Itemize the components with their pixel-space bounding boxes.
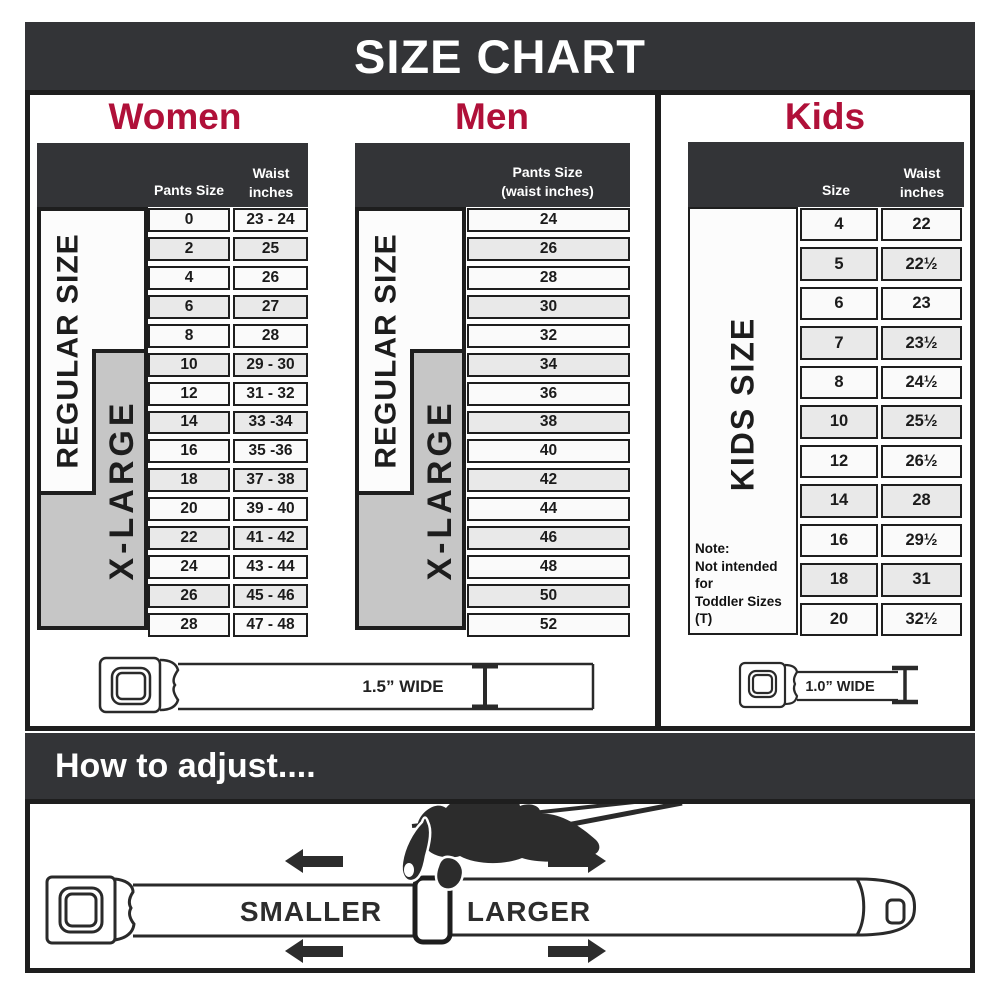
kids-size-label-box: KIDS SIZE Note: Not intended for Toddler… bbox=[688, 207, 798, 635]
women-col1-header: Pants Size bbox=[145, 181, 233, 200]
size-cell: 25 bbox=[233, 237, 308, 261]
size-cell: 38 bbox=[467, 411, 630, 435]
size-cell: 23 bbox=[881, 287, 962, 320]
size-cell: 23 - 24 bbox=[233, 208, 308, 232]
size-cell: 20 bbox=[148, 497, 230, 521]
size-cell: 10 bbox=[800, 405, 878, 438]
kids-note: Note: Not intended for Toddler Sizes (T) bbox=[695, 540, 796, 628]
size-cell: 33 -34 bbox=[233, 411, 308, 435]
size-cell: 20 bbox=[800, 603, 878, 636]
size-cell: 14 bbox=[148, 411, 230, 435]
adjust-buckle-flap bbox=[115, 879, 134, 940]
size-cell: 31 bbox=[881, 563, 962, 596]
panel-divider bbox=[655, 90, 661, 731]
size-cell: 16 bbox=[148, 439, 230, 463]
size-cell: 43 - 44 bbox=[233, 555, 308, 579]
how-to-adjust-bar: How to adjust.... bbox=[25, 733, 975, 799]
size-cell: 40 bbox=[467, 439, 630, 463]
size-cell: 18 bbox=[148, 468, 230, 492]
size-cell: 28 bbox=[881, 484, 962, 517]
adult-width-marker-icon bbox=[472, 666, 498, 707]
size-cell: 26 bbox=[233, 266, 308, 290]
size-cell: 29½ bbox=[881, 524, 962, 557]
size-cell: 42 bbox=[467, 468, 630, 492]
size-cell: 2 bbox=[148, 237, 230, 261]
size-cell: 36 bbox=[467, 382, 630, 406]
kids-buckle-flap bbox=[785, 665, 797, 704]
size-cell: 27 bbox=[233, 295, 308, 319]
size-cell: 8 bbox=[148, 324, 230, 348]
men-regular-size-label: REGULAR SIZE bbox=[370, 233, 403, 468]
kids-table-header: Size Waist inches bbox=[688, 142, 964, 207]
size-cell: 23½ bbox=[881, 326, 962, 359]
size-cell: 30 bbox=[467, 295, 630, 319]
men-size-table: 242628303234363840424446485052 bbox=[467, 208, 630, 637]
women-size-class-labels: REGULAR SIZE X-LARGE bbox=[37, 207, 148, 635]
kids-col1-header: Size bbox=[795, 181, 877, 200]
size-cell: 22 bbox=[881, 208, 962, 241]
adult-belt-illustration: 1.5” WIDE bbox=[90, 650, 600, 718]
men-title: Men bbox=[392, 96, 592, 138]
size-cell: 6 bbox=[148, 295, 230, 319]
size-cell: 48 bbox=[467, 555, 630, 579]
kids-size-table: 422522½623723½824½1025½1226½14281629½183… bbox=[800, 208, 962, 636]
size-cell: 6 bbox=[800, 287, 878, 320]
size-cell: 8 bbox=[800, 366, 878, 399]
size-cell: 4 bbox=[148, 266, 230, 290]
size-cell: 37 - 38 bbox=[233, 468, 308, 492]
men-table-header: Pants Size (waist inches) bbox=[355, 143, 630, 207]
size-chart-header-bar: SIZE CHART bbox=[25, 22, 975, 90]
size-cell: 29 - 30 bbox=[233, 353, 308, 377]
adult-belt-width-label: 1.5” WIDE bbox=[362, 677, 443, 696]
smaller-label: SMALLER bbox=[240, 896, 382, 927]
women-col2-header: Waist inches bbox=[233, 164, 309, 202]
size-cell: 50 bbox=[467, 584, 630, 608]
size-cell: 22 bbox=[148, 526, 230, 550]
size-cell: 31 - 32 bbox=[233, 382, 308, 406]
women-xlarge-label: X-LARGE bbox=[103, 400, 141, 581]
size-cell: 47 - 48 bbox=[233, 613, 308, 637]
size-cell: 12 bbox=[800, 445, 878, 478]
size-cell: 35 -36 bbox=[233, 439, 308, 463]
men-xlarge-label: X-LARGE bbox=[421, 400, 459, 581]
size-cell: 45 - 46 bbox=[233, 584, 308, 608]
larger-label: LARGER bbox=[467, 896, 591, 927]
size-cell: 28 bbox=[467, 266, 630, 290]
size-cell: 26½ bbox=[881, 445, 962, 478]
size-cell: 28 bbox=[148, 613, 230, 637]
size-cell: 32½ bbox=[881, 603, 962, 636]
kids-buckle-icon bbox=[740, 663, 785, 707]
size-cell: 41 - 42 bbox=[233, 526, 308, 550]
size-cell: 25½ bbox=[881, 405, 962, 438]
size-cell: 22½ bbox=[881, 247, 962, 280]
adjust-illustration: SMALLER LARGER bbox=[30, 804, 970, 968]
women-regular-size-label: REGULAR SIZE bbox=[52, 233, 85, 468]
kids-size-label: KIDS SIZE bbox=[725, 317, 762, 491]
size-cell: 24 bbox=[148, 555, 230, 579]
size-cell: 16 bbox=[800, 524, 878, 557]
women-size-table: 023 - 242254266278281029 - 301231 - 3214… bbox=[148, 208, 308, 637]
size-cell: 24 bbox=[467, 208, 630, 232]
size-cell: 46 bbox=[467, 526, 630, 550]
thumbnail bbox=[404, 863, 414, 877]
size-cell: 14 bbox=[800, 484, 878, 517]
size-chart-page: SIZE CHART Women Men Kids Pants Size Wai… bbox=[0, 0, 1000, 1000]
belt-tip-hole bbox=[887, 900, 904, 923]
size-cell: 10 bbox=[148, 353, 230, 377]
size-cell: 39 - 40 bbox=[233, 497, 308, 521]
size-cell: 44 bbox=[467, 497, 630, 521]
women-table-header: Pants Size Waist inches bbox=[37, 143, 308, 207]
page-title: SIZE CHART bbox=[354, 29, 646, 84]
size-cell: 0 bbox=[148, 208, 230, 232]
men-col-header: Pants Size (waist inches) bbox=[470, 163, 625, 201]
size-cell: 18 bbox=[800, 563, 878, 596]
kids-title: Kids bbox=[725, 96, 925, 138]
size-cell: 52 bbox=[467, 613, 630, 637]
size-cell: 24½ bbox=[881, 366, 962, 399]
women-title: Women bbox=[75, 96, 275, 138]
size-cell: 12 bbox=[148, 382, 230, 406]
how-to-adjust-title: How to adjust.... bbox=[55, 747, 316, 786]
kids-belt-illustration: 1.0” WIDE bbox=[728, 656, 928, 712]
size-cell: 7 bbox=[800, 326, 878, 359]
size-cell: 28 bbox=[233, 324, 308, 348]
kids-belt-width-label: 1.0” WIDE bbox=[805, 679, 875, 695]
index-fingertip bbox=[436, 857, 463, 890]
kids-col2-header: Waist inches bbox=[884, 164, 960, 202]
belt-tip-seam bbox=[857, 879, 864, 935]
size-cell: 26 bbox=[467, 237, 630, 261]
size-cell: 26 bbox=[148, 584, 230, 608]
size-cell: 4 bbox=[800, 208, 878, 241]
adjust-illustration-box: SMALLER LARGER bbox=[25, 799, 975, 973]
size-cell: 34 bbox=[467, 353, 630, 377]
buckle-strap-flap bbox=[160, 660, 178, 710]
men-size-class-labels: REGULAR SIZE X-LARGE bbox=[355, 207, 466, 635]
size-cell: 5 bbox=[800, 247, 878, 280]
size-cell: 32 bbox=[467, 324, 630, 348]
